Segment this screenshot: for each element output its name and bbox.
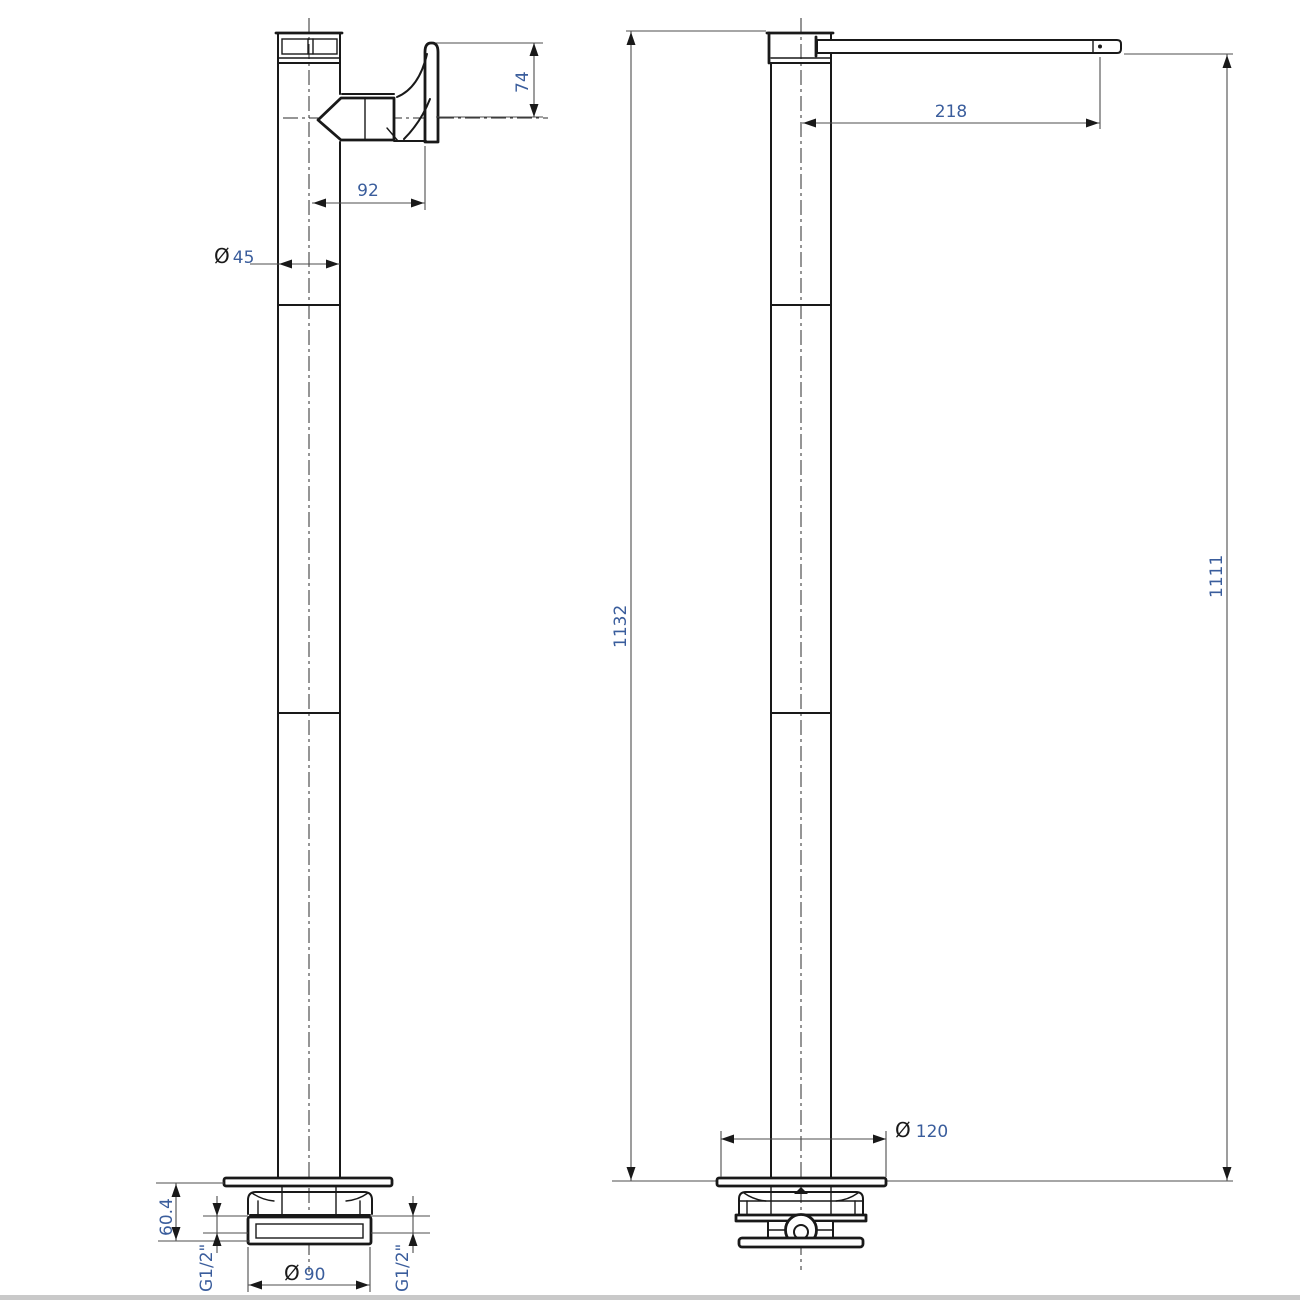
- dimension-g12-right: G1/2": [371, 1196, 430, 1292]
- dim-label-diameter-120: Ø120: [895, 1118, 948, 1142]
- side-base: [224, 1178, 392, 1244]
- dim-label-1111: 1111: [1207, 555, 1227, 598]
- base-collar: [248, 1217, 371, 1244]
- valve-body: [318, 98, 394, 140]
- dimension-74: 74: [436, 43, 543, 117]
- dim-label-92: 92: [357, 181, 379, 201]
- front-view: 218 1132 1111 Ø120: [611, 18, 1233, 1270]
- front-base: [717, 1178, 886, 1247]
- dim-label-60-4: 60.4: [157, 1198, 177, 1236]
- dim-label-74: 74: [513, 71, 533, 93]
- dimension-218: 218: [802, 57, 1100, 129]
- spout: [816, 37, 1121, 56]
- dim-label-1132: 1132: [611, 605, 631, 648]
- dimension-1132: 1132: [611, 31, 766, 1181]
- dimension-1111: 1111: [1124, 54, 1233, 1181]
- floor-plate: [224, 1178, 392, 1186]
- technical-drawing-page: 74 92 Ø45 60.4: [0, 0, 1300, 1300]
- base-flange: [248, 1192, 372, 1214]
- spout-aerator-dot: [1098, 45, 1102, 49]
- floor-plate: [717, 1178, 886, 1186]
- dimension-60-4: 60.4: [156, 1183, 250, 1241]
- dimension-g12-left: G1/2": [197, 1196, 248, 1292]
- spout-bar: [817, 40, 1121, 53]
- technical-drawing-canvas: 74 92 Ø45 60.4: [0, 0, 1300, 1300]
- side-view: 74 92 Ø45 60.4: [156, 18, 548, 1292]
- dim-label-g12-right: G1/2": [393, 1244, 413, 1292]
- dim-label-diameter-90: Ø90: [284, 1261, 325, 1285]
- dim-label-218: 218: [935, 102, 967, 122]
- dimension-diameter-120: Ø120: [721, 1118, 948, 1177]
- base-bottom-plate: [739, 1238, 863, 1247]
- dim-label-g12-left: G1/2": [197, 1244, 217, 1292]
- page-bottom-strip: [0, 1295, 1300, 1300]
- dimension-92: 92: [312, 146, 425, 210]
- dim-label-diameter-45: Ø45: [214, 244, 254, 268]
